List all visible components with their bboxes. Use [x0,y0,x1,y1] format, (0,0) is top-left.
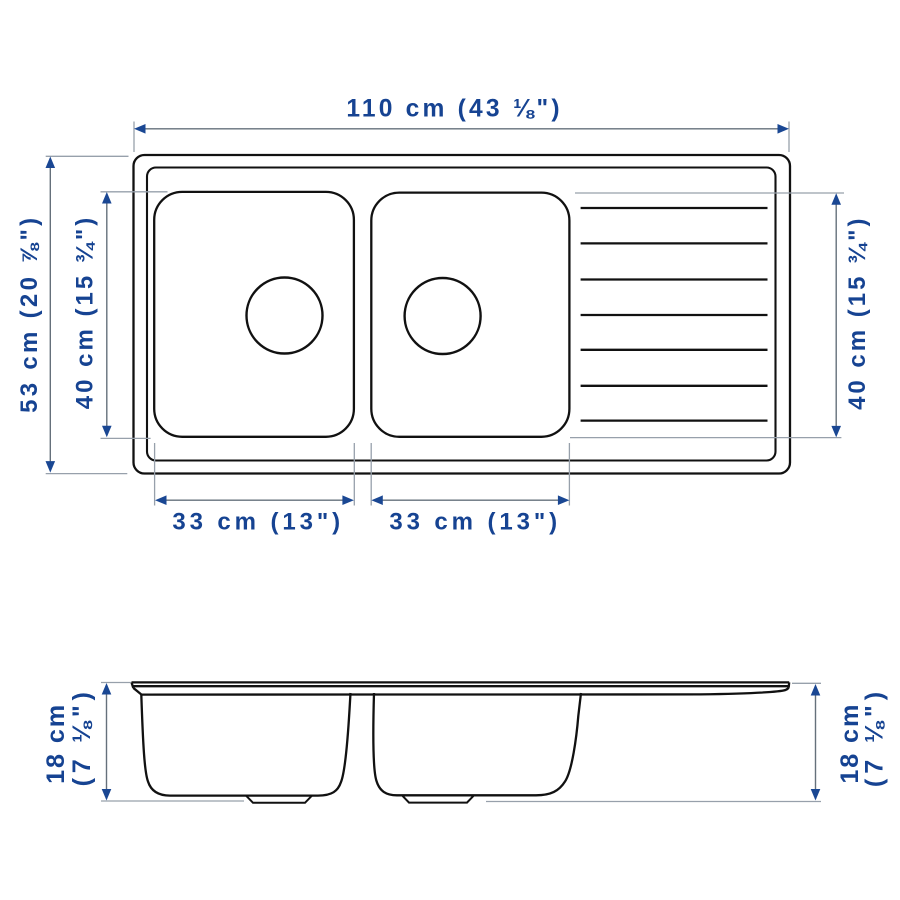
svg-text:53 cm (20 ⅞"): 53 cm (20 ⅞") [16,215,43,413]
svg-text:18 cm: 18 cm [42,703,70,784]
svg-text:33 cm (13"): 33 cm (13") [172,509,344,536]
svg-text:40 cm (15 ¾"): 40 cm (15 ¾") [72,215,99,409]
svg-text:40 cm (15 ¾"): 40 cm (15 ¾") [844,215,871,409]
svg-text:(7 ⅛"): (7 ⅛") [861,687,889,787]
svg-text:33 cm (13"): 33 cm (13") [389,509,561,536]
svg-text:110 cm (43 ⅛"): 110 cm (43 ⅛") [346,96,562,123]
svg-text:(7 ⅛"): (7 ⅛") [68,687,96,786]
